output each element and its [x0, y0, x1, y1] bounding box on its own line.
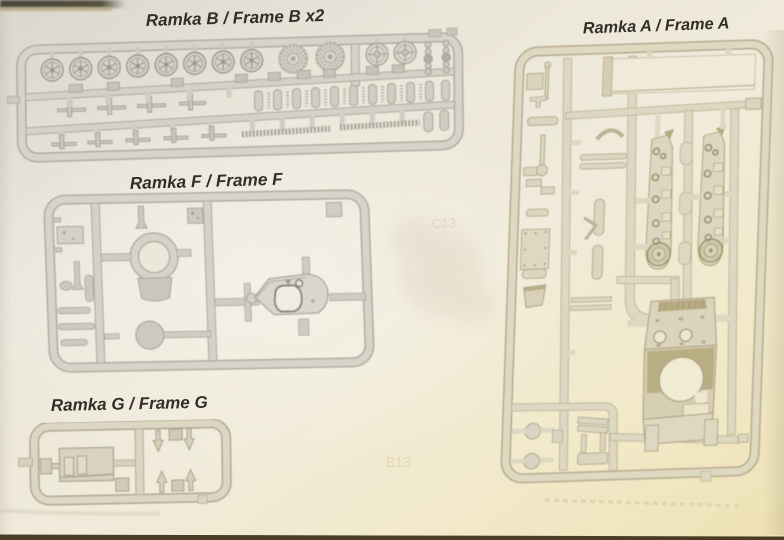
svg-text:Ramka F / Frame F: Ramka F / Frame F [130, 169, 284, 193]
svg-text:B13: B13 [386, 454, 411, 470]
svg-text:C13: C13 [432, 215, 456, 231]
svg-text:Ramka G / Frame G: Ramka G / Frame G [51, 393, 208, 415]
